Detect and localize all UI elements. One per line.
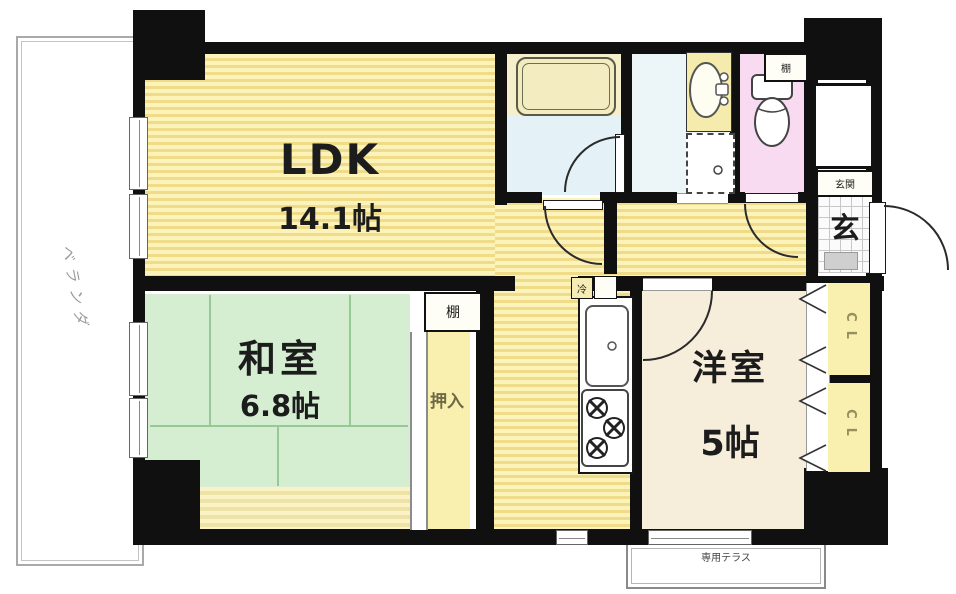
window-kitchen-south xyxy=(556,530,588,545)
utility-box xyxy=(594,276,617,299)
toilet-door-leaf xyxy=(745,193,799,203)
wall-bottom-left-block xyxy=(133,460,200,535)
room-youshitsu-floor xyxy=(642,290,806,530)
bathroom-floor xyxy=(507,115,621,195)
window-washitsu-1 xyxy=(129,322,148,396)
floor-plan: ベランダ 専用テラス xyxy=(0,0,956,594)
bathtub xyxy=(516,57,616,116)
genkan-label-box: 玄関 xyxy=(816,170,874,197)
wall-bottom-right-block xyxy=(804,468,888,545)
wall-genkan-left xyxy=(806,196,818,276)
terrace-label: 専用テラス xyxy=(628,549,824,564)
oshiire-floor xyxy=(424,330,470,530)
youshitsu-name: 洋室 xyxy=(644,340,816,391)
washing-machine xyxy=(686,133,735,194)
window-youshitsu-south xyxy=(648,530,752,545)
entrance-door-leaf xyxy=(869,202,886,274)
bathtub-inner-line xyxy=(522,63,610,110)
entrance-door-arc xyxy=(884,206,948,270)
kitchen-sink xyxy=(585,305,629,387)
youshitsu-size: 5帖 xyxy=(644,415,816,466)
oshiire-sliding-door xyxy=(410,332,428,530)
toilet-shelf-box: 棚 xyxy=(764,53,808,82)
genkan-symbol: 玄 xyxy=(820,205,870,247)
wall-ldk-washitsu xyxy=(133,276,515,291)
ldk-name: LDK xyxy=(230,135,430,184)
shelf-label-box: 棚 xyxy=(424,292,482,332)
wall-bathblock-south-4 xyxy=(798,192,806,203)
wall-bathblock-south-1 xyxy=(507,192,542,203)
washroom-sliding-door xyxy=(677,193,728,204)
oshiire-label: 押入 xyxy=(424,378,470,426)
genkan-step xyxy=(824,252,858,270)
wall-hall-door-stub xyxy=(604,200,617,274)
ldk-size: 14.1帖 xyxy=(230,194,430,238)
window-washitsu-2 xyxy=(129,398,148,458)
washitsu-wood-strip xyxy=(200,487,410,530)
window-ldk-1 xyxy=(129,117,148,190)
shoe-cabinet xyxy=(813,83,874,169)
fridge-label-box: 冷 xyxy=(571,277,593,299)
window-ldk-2 xyxy=(129,194,148,259)
closet-2-label: CL xyxy=(840,392,858,462)
hallway-floor xyxy=(495,198,818,282)
washitsu-size: 6.8帖 xyxy=(190,383,370,425)
washitsu-name: 和室 xyxy=(190,328,370,383)
washbasin-counter xyxy=(686,52,732,132)
youshitsu-door-threshold xyxy=(643,278,712,291)
closet-1-label: CL xyxy=(840,295,858,365)
hall-door-leaf xyxy=(543,200,603,210)
wall-ldk-bath xyxy=(495,42,507,205)
bathroom-door-leaf xyxy=(615,134,625,193)
terrace-area: 専用テラス xyxy=(626,543,826,589)
